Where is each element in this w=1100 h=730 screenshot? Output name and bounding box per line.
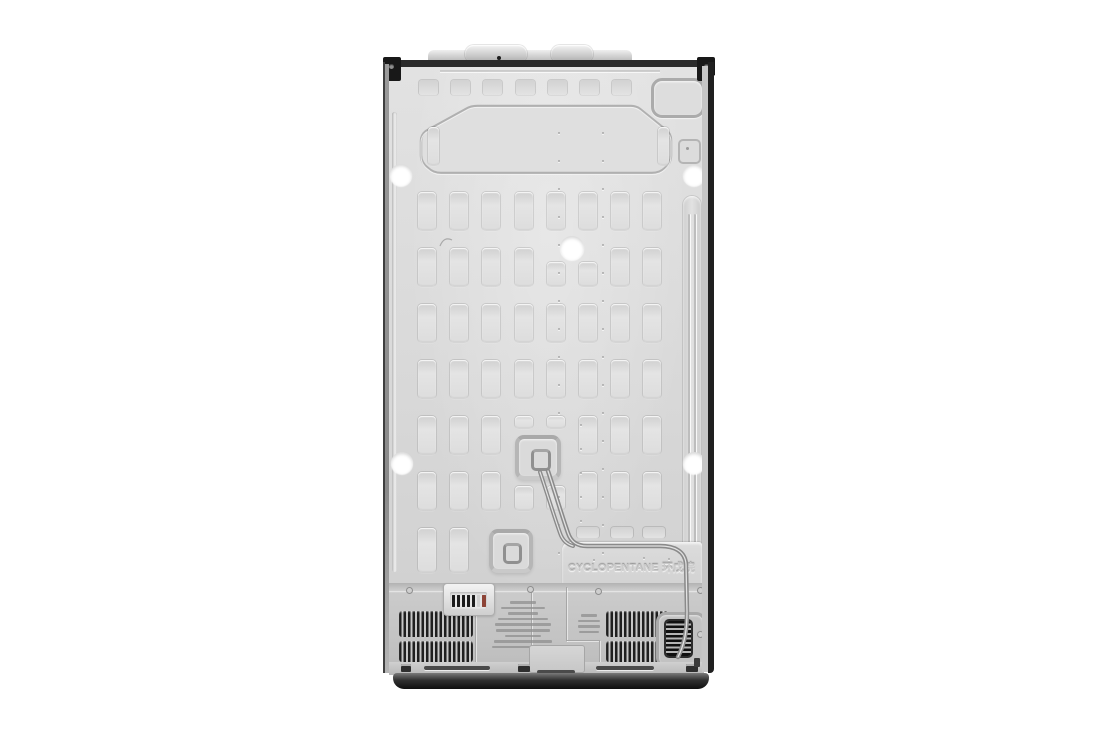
- label-bar: [462, 595, 465, 607]
- vent-slot-emboss: [418, 528, 436, 572]
- left-side-edge: [385, 64, 389, 673]
- stamp-dot: [558, 496, 560, 498]
- stamp-dot: [580, 520, 582, 522]
- vent-slot-emboss: [579, 192, 597, 230]
- mounting-hole: [560, 236, 584, 260]
- base-kick-strip: [393, 673, 709, 689]
- screw-icon: [595, 588, 602, 595]
- fine-print-center: [487, 598, 559, 648]
- top-right-emboss-panel: [651, 78, 705, 118]
- vent-slot-emboss: [611, 360, 629, 398]
- rail-slot: [596, 666, 654, 670]
- right-edge-line: [708, 62, 714, 673]
- fine-print-right: [575, 611, 603, 633]
- top-emboss-square: [548, 80, 567, 95]
- stamp-dot: [602, 440, 604, 442]
- vent-slot-emboss: [515, 248, 533, 286]
- vent-slot-emboss: [547, 304, 565, 342]
- mounting-hole: [390, 164, 412, 186]
- stamp-dot: [558, 412, 560, 414]
- stamp-dot: [580, 424, 582, 426]
- vent-slot-emboss: [482, 416, 500, 454]
- stamp-dot: [602, 552, 604, 554]
- vent-slot-emboss: [579, 360, 597, 398]
- top-emboss-square: [419, 80, 438, 95]
- stamp-dot: [558, 272, 560, 274]
- mounting-hole: [391, 452, 413, 474]
- stamp-dot: [580, 544, 582, 546]
- vent-slot-emboss: [418, 248, 436, 286]
- stamp-dot: [558, 524, 560, 526]
- vent-slot-emboss: [450, 472, 468, 510]
- stamp-dot: [643, 557, 645, 559]
- vent-grille-left-bottom: [399, 641, 473, 662]
- small-emboss-rect: [577, 527, 599, 538]
- vent-slot-emboss: [611, 416, 629, 454]
- stamp-dot: [602, 412, 604, 414]
- label-bar: [467, 595, 470, 607]
- right-channel-line: [694, 214, 696, 552]
- vent-slot-emboss: [450, 192, 468, 230]
- fine-print-line: [581, 614, 597, 617]
- vent-slot-emboss: [643, 248, 661, 286]
- vent-slot-emboss: [515, 304, 533, 342]
- stamp-dot: [602, 188, 604, 190]
- stamp-dot: [602, 384, 604, 386]
- top-edge-trim: [384, 60, 715, 67]
- label-bar: [457, 595, 460, 607]
- stamp-dot: [602, 524, 604, 526]
- rail-slot: [424, 666, 490, 670]
- stamp-dot: [602, 244, 604, 246]
- fine-print-line: [579, 631, 599, 634]
- vent-slot-emboss: [515, 486, 533, 510]
- vent-slot-emboss: [428, 127, 439, 165]
- rail-opening: [401, 664, 411, 672]
- stamp-dot: [558, 328, 560, 330]
- fine-print-line: [494, 640, 552, 643]
- fine-print-line: [495, 623, 551, 626]
- fine-print-line: [578, 620, 600, 623]
- vent-slot-emboss: [450, 248, 468, 286]
- stamp-dot: [580, 448, 582, 450]
- vent-slot-emboss: [547, 360, 565, 398]
- vent-slot-emboss: [450, 528, 468, 572]
- vent-slot-emboss: [482, 360, 500, 398]
- vent-slot-emboss: [418, 416, 436, 454]
- stamp-dot: [602, 328, 604, 330]
- vent-slot-emboss: [515, 416, 533, 428]
- label-bar: [482, 595, 486, 607]
- vent-slot-emboss: [579, 304, 597, 342]
- fine-print-line: [578, 625, 600, 628]
- small-emboss-rect: [643, 527, 665, 538]
- stamp-dot: [558, 384, 560, 386]
- product-photo-stage: CYCLOPENTANE 环戊烷: [0, 0, 1100, 730]
- compartment-top-rail: [389, 583, 704, 591]
- label-bar: [477, 595, 480, 607]
- vent-slot-emboss: [643, 360, 661, 398]
- compartment-seam: [566, 640, 599, 641]
- stamp-dot: [602, 160, 604, 162]
- drain-grille: [666, 621, 691, 656]
- stamp-dot: [602, 132, 604, 134]
- corner-clip: [694, 658, 700, 667]
- rivet-dot: [686, 147, 689, 150]
- label-bar: [452, 595, 455, 607]
- vent-slot-emboss: [450, 416, 468, 454]
- vent-slot-emboss: [643, 304, 661, 342]
- vent-slot-emboss: [611, 192, 629, 230]
- compartment-seam: [566, 587, 567, 641]
- vent-slot-emboss: [482, 192, 500, 230]
- small-emboss-rect: [611, 527, 633, 538]
- vent-slot-emboss: [547, 486, 565, 510]
- top-emboss-square: [483, 80, 502, 95]
- vent-slot-emboss: [418, 472, 436, 510]
- stamp-dot: [558, 356, 560, 358]
- stamp-dot: [602, 468, 604, 470]
- vent-slot-emboss: [658, 127, 669, 165]
- top-emboss-square: [451, 80, 470, 95]
- center-foot-emboss: [529, 645, 585, 673]
- right-pipe-channel: [683, 196, 701, 564]
- stamp-dot: [580, 472, 582, 474]
- right-small-emboss: [678, 139, 701, 164]
- top-emboss-square: [612, 80, 631, 95]
- vent-slot-emboss: [547, 192, 565, 230]
- compartment-seam: [599, 640, 600, 664]
- stamp-dot: [558, 552, 560, 554]
- vent-slot-emboss: [643, 192, 661, 230]
- label-bar: [472, 595, 475, 607]
- vent-slot-emboss: [579, 262, 597, 286]
- stamp-dot: [580, 496, 582, 498]
- access-panel-lower-inner: [503, 543, 522, 564]
- stamp-dot: [602, 216, 604, 218]
- vent-slot-emboss: [418, 360, 436, 398]
- vent-slot-emboss: [611, 472, 629, 510]
- access-panel-upper-inner: [531, 449, 551, 471]
- vent-slot-emboss: [515, 360, 533, 398]
- fine-print-line: [496, 629, 550, 632]
- fine-print-line: [508, 612, 538, 615]
- top-emboss-square: [516, 80, 535, 95]
- barcode-bars: [450, 592, 487, 609]
- vent-slot-emboss: [547, 416, 565, 428]
- vent-slot-emboss: [482, 248, 500, 286]
- vent-slot-emboss: [579, 472, 597, 510]
- stamp-dot: [558, 216, 560, 218]
- stamp-dot: [602, 300, 604, 302]
- stamp-dot: [558, 160, 560, 162]
- vent-slot-emboss: [418, 304, 436, 342]
- vent-slot-emboss: [482, 304, 500, 342]
- fine-print-line: [498, 618, 548, 621]
- stamp-dot: [602, 356, 604, 358]
- vent-slot-emboss: [418, 192, 436, 230]
- stamp-dot: [602, 272, 604, 274]
- vent-slot-emboss: [611, 248, 629, 286]
- vent-slot-emboss: [547, 262, 565, 286]
- screw-icon: [389, 64, 394, 69]
- stamp-dot: [558, 132, 560, 134]
- vent-slot-emboss: [643, 416, 661, 454]
- stamp-dot: [558, 188, 560, 190]
- screw-icon: [406, 587, 413, 594]
- vent-slot-emboss: [643, 472, 661, 510]
- vent-slot-emboss: [611, 304, 629, 342]
- fine-print-line: [501, 607, 545, 610]
- screw-icon: [527, 586, 534, 593]
- right-channel-line: [688, 214, 690, 552]
- vent-slot-emboss: [515, 192, 533, 230]
- fine-print-line: [510, 601, 536, 604]
- vent-slot-emboss: [450, 304, 468, 342]
- top-emboss-square: [580, 80, 599, 95]
- vent-slot-emboss: [482, 472, 500, 510]
- stamp-dot: [602, 496, 604, 498]
- vent-slot-emboss: [450, 360, 468, 398]
- stamp-dot: [558, 300, 560, 302]
- cyclopentane-embossed-text: CYCLOPENTANE 环戊烷: [568, 560, 700, 575]
- rail-opening: [518, 664, 530, 672]
- fine-print-line: [505, 635, 541, 638]
